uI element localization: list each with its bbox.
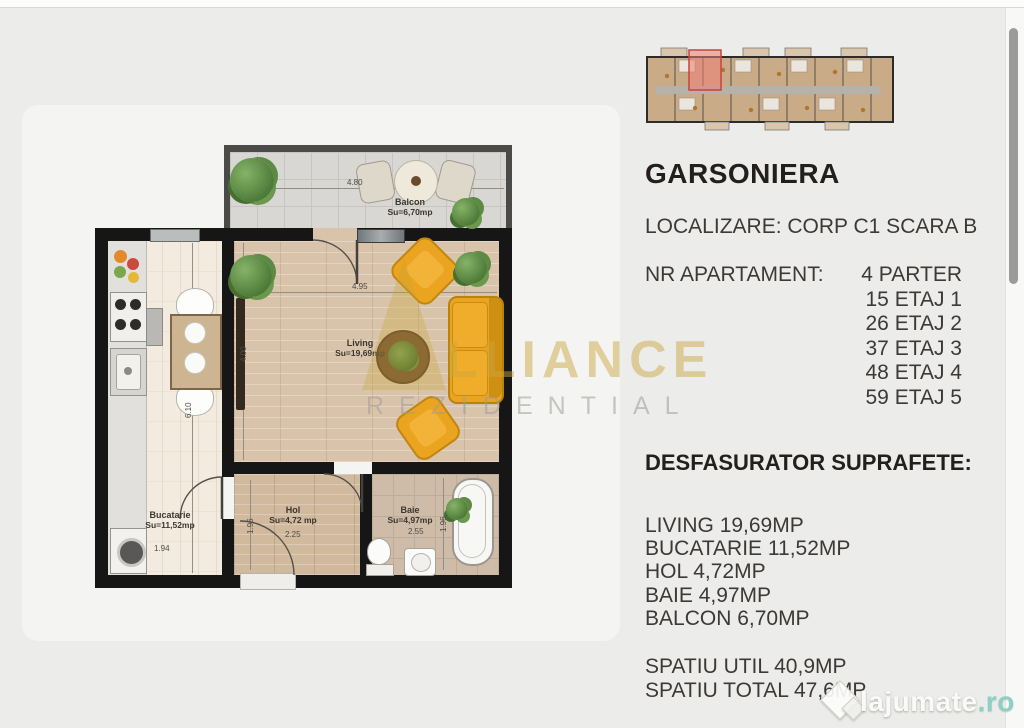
- lajumate-watermark: lajumate.ro: [860, 686, 1015, 718]
- plate: [184, 322, 206, 344]
- balcony-sliding-door: [357, 229, 405, 243]
- balcony-wall-top: [224, 145, 512, 152]
- apartment-entry: 48 ETAJ 4: [790, 361, 962, 386]
- plant: [452, 198, 480, 226]
- balcony-wall-right: [506, 145, 512, 230]
- area-entry: BUCATARIE 11,52MP: [645, 537, 850, 560]
- balcony-door-gap: [313, 228, 357, 241]
- building-level-plan: [645, 46, 895, 134]
- baie-height-dim: 1.96: [439, 516, 448, 532]
- highlighted-unit: [689, 50, 721, 90]
- hol-height-dim: 1.96: [246, 518, 255, 534]
- bathroom-sink: [404, 548, 436, 576]
- room-label-hol: Hol Su=4,72 mp: [258, 505, 328, 525]
- plant: [230, 158, 274, 202]
- bucatarie-name: Bucatarie: [128, 510, 212, 520]
- bathtub: [452, 478, 494, 566]
- wall-hall-top-right: [372, 462, 499, 474]
- toilet: [366, 538, 392, 575]
- bucatarie-area: Su=11,52mp: [128, 520, 212, 530]
- apartment-entry: 37 ETAJ 3: [790, 337, 962, 362]
- plant: [455, 252, 487, 284]
- scrollbar-thumb[interactable]: [1009, 28, 1018, 284]
- baie-name: Baie: [375, 505, 445, 515]
- stove: [110, 292, 147, 342]
- entrance-door-sill: [240, 573, 296, 590]
- rezidential-watermark-text: REZIDENTIAL: [366, 392, 694, 421]
- lajumate-site-tld: .ro: [978, 686, 1015, 717]
- fruit-bowl: [128, 272, 139, 283]
- washing-machine: [110, 528, 147, 574]
- room-label-balcon: Balcon Su=6,70mp: [368, 197, 452, 217]
- apartment-entry: 15 ETAJ 1: [790, 288, 962, 313]
- wall-bottom: [95, 575, 512, 588]
- alliance-triangle-logo: [362, 258, 446, 390]
- kitchen-window: [150, 229, 200, 242]
- area-entry: HOL 4,72MP: [645, 560, 850, 583]
- top-strip: [0, 0, 1024, 8]
- alliance-watermark-text: LLIANCE: [446, 330, 713, 390]
- bucatarie-width-dim: 1.94: [154, 544, 170, 553]
- areas-list: LIVING 19,69MP BUCATARIE 11,52MP HOL 4,7…: [645, 514, 850, 630]
- hol-name: Hol: [258, 505, 328, 515]
- lajumate-site-name: lajumate: [860, 686, 978, 717]
- area-entry: LIVING 19,69MP: [645, 514, 850, 537]
- apartment-entry: 59 ETAJ 5: [790, 386, 962, 411]
- total-entry: SPATIU UTIL 40,9MP: [645, 655, 866, 679]
- apartment-number-list: 4 PARTER 15 ETAJ 1 26 ETAJ 2 37 ETAJ 3 4…: [790, 263, 962, 410]
- areas-title: DESFASURATOR SUPRAFETE:: [645, 450, 972, 476]
- balcon-name: Balcon: [368, 197, 452, 207]
- kitchen-cabinet: [146, 308, 163, 346]
- bucatarie-height-dim: 6.10: [184, 402, 193, 418]
- balcon-width-dim: 4.80: [347, 178, 363, 187]
- wall-left: [95, 228, 108, 588]
- apartment-entry: 26 ETAJ 2: [790, 312, 962, 337]
- living-height-dim: 4.00: [239, 346, 248, 362]
- room-label-bucatarie: Bucatarie Su=11,52mp: [128, 510, 212, 530]
- balcon-area: Su=6,70mp: [368, 207, 452, 217]
- plate: [184, 352, 206, 374]
- baie-area: Su=4,97mp: [375, 515, 445, 525]
- wall-kitchen-partition-lower: [222, 519, 234, 575]
- area-entry: BALCON 6,70MP: [645, 607, 850, 630]
- wall-hall-top-left: [234, 462, 334, 474]
- hol-area: Su=4,72 mp: [258, 515, 328, 525]
- plant: [446, 498, 468, 520]
- kitchen-sink: [110, 348, 147, 396]
- area-entry: BAIE 4,97MP: [645, 584, 850, 607]
- apartment-entry: 4 PARTER: [790, 263, 962, 288]
- baie-width-dim: 2.55: [408, 527, 424, 536]
- fruit-bowl: [114, 250, 127, 263]
- fruit-bowl: [127, 258, 139, 270]
- localization-text: LOCALIZARE: CORP C1 SCARA B: [645, 215, 977, 239]
- hol-width-dim: 2.25: [285, 530, 301, 539]
- balcony-wall-left: [224, 145, 230, 230]
- room-label-baie: Baie Su=4,97mp: [375, 505, 445, 525]
- page-title: GARSONIERA: [645, 158, 840, 190]
- fruit-bowl: [114, 266, 126, 278]
- plant: [230, 255, 272, 297]
